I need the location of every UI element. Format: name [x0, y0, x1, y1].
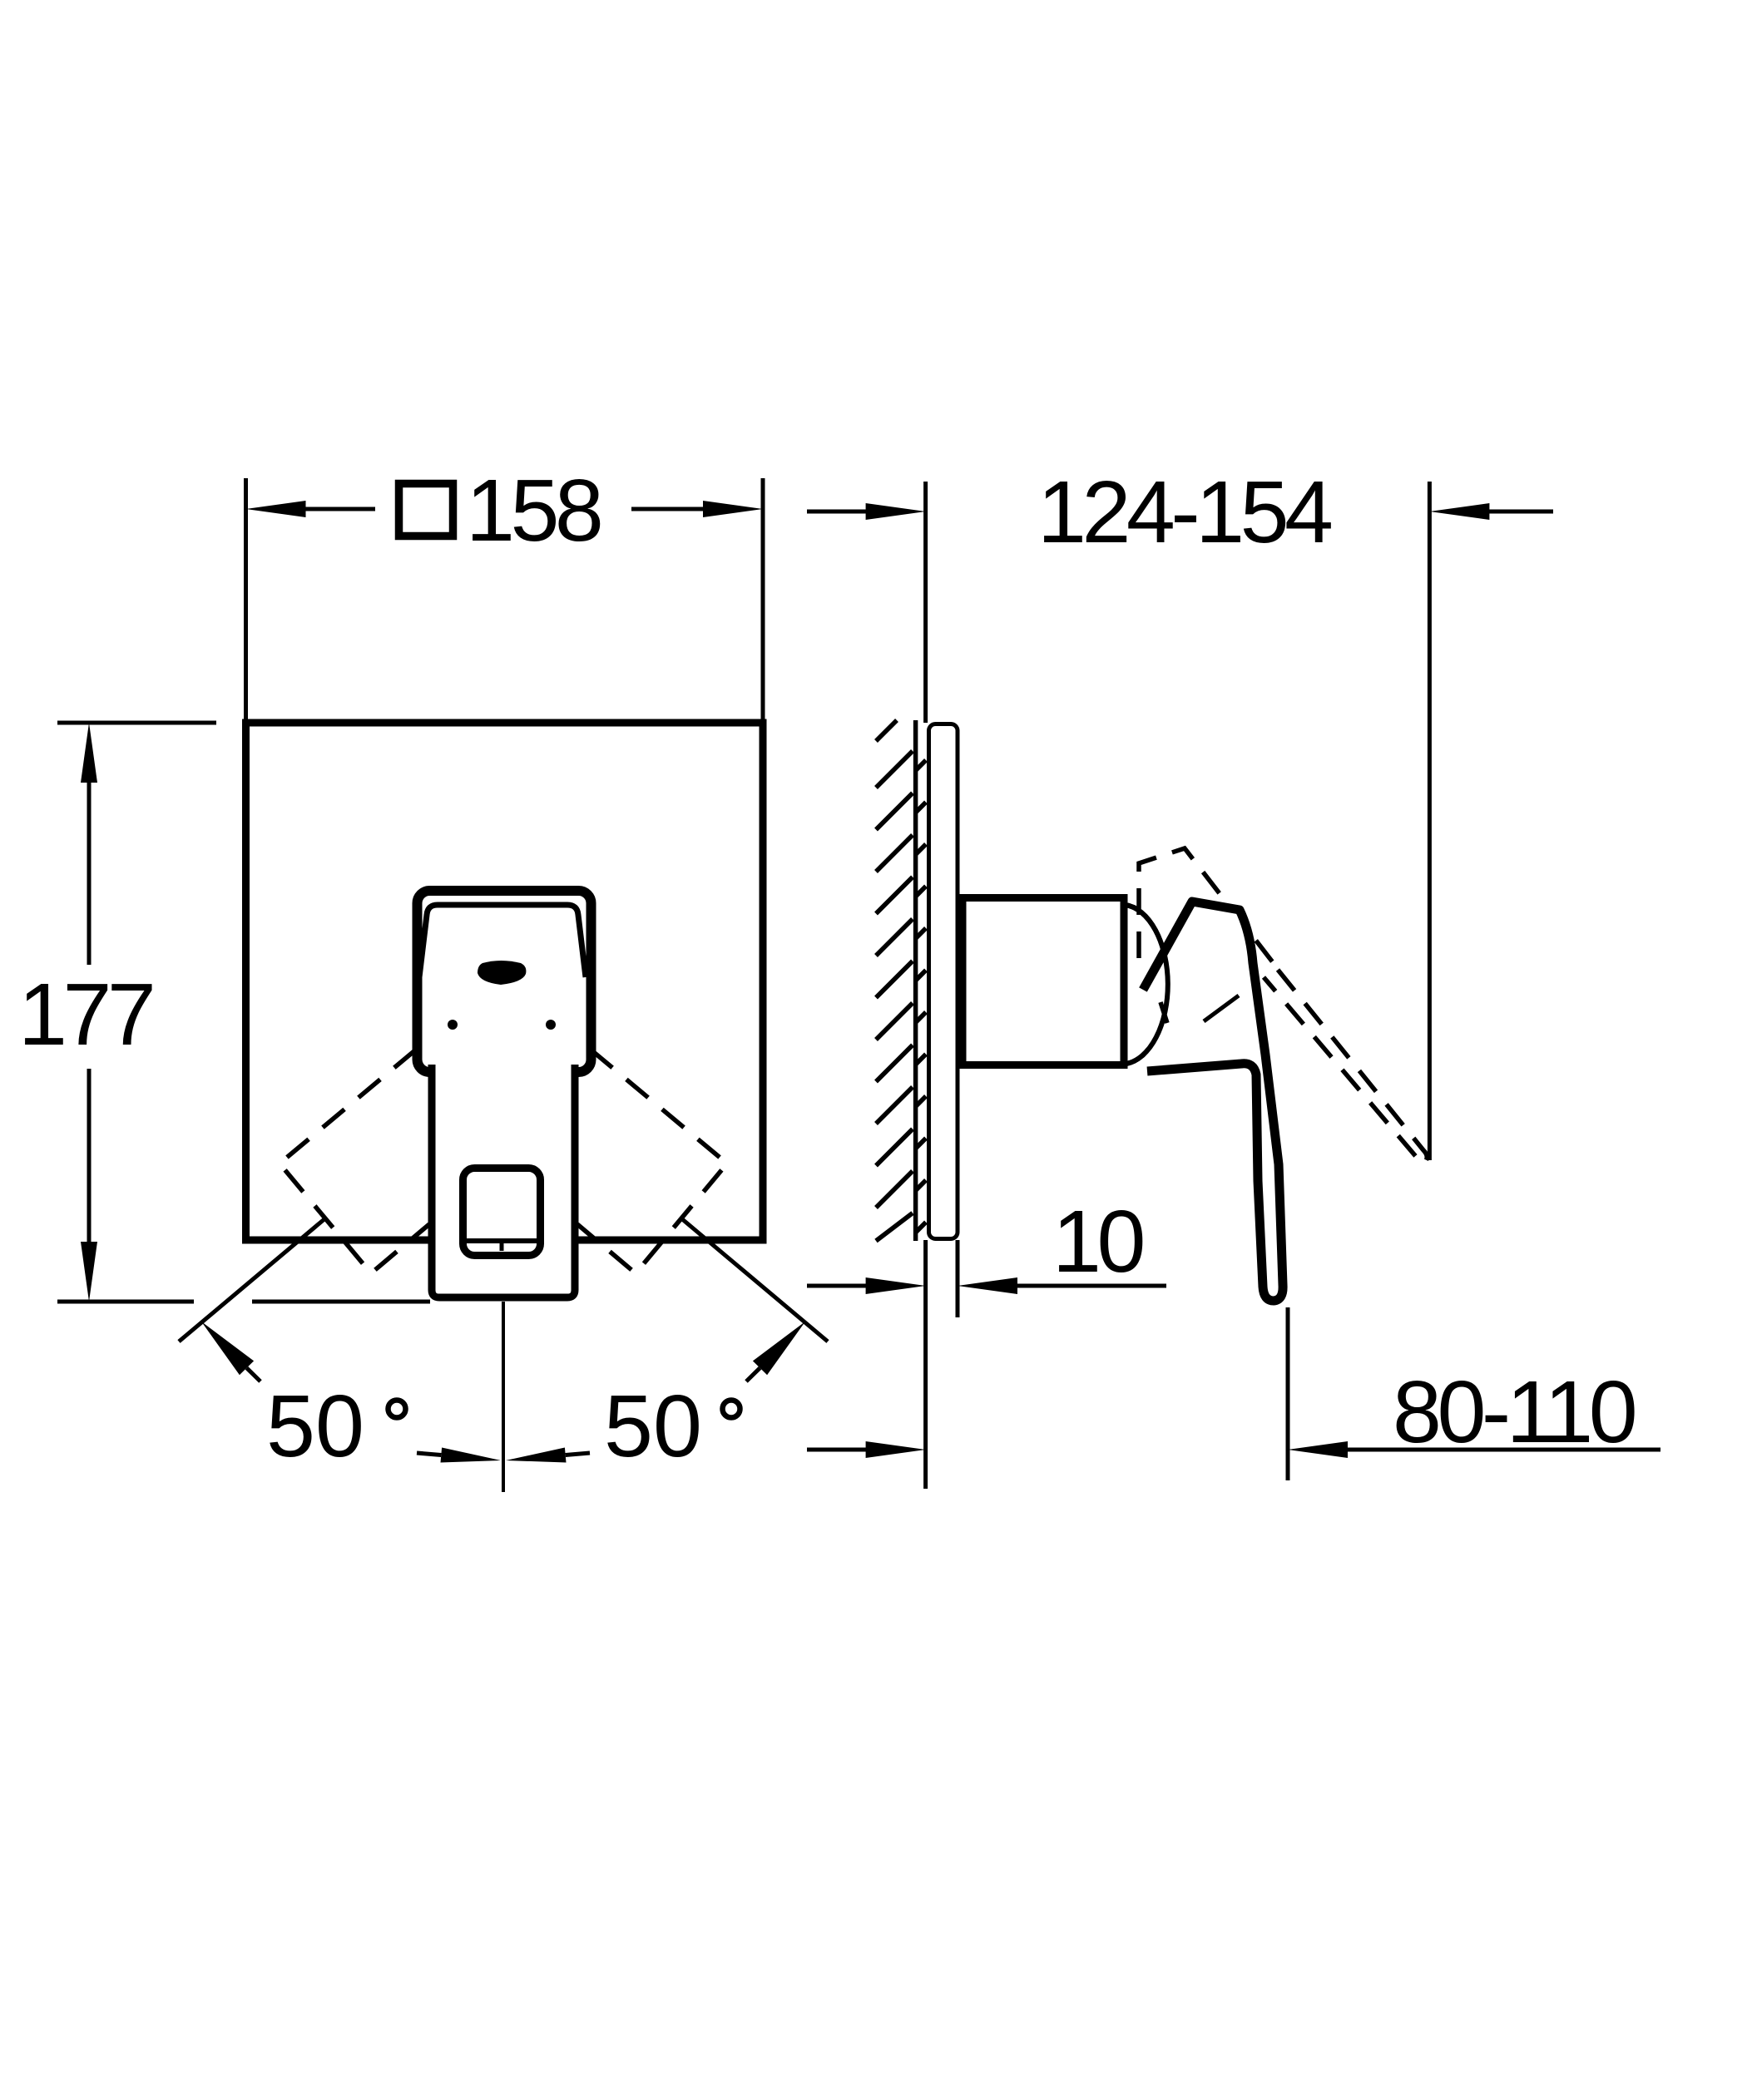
svg-text:50: 50: [604, 1377, 702, 1475]
svg-text:10: 10: [1052, 1193, 1142, 1291]
svg-text:177: 177: [18, 966, 152, 1064]
svg-text:50: 50: [266, 1377, 364, 1475]
svg-text:80-110: 80-110: [1393, 1363, 1635, 1461]
svg-text:158: 158: [466, 462, 601, 560]
svg-text:124-154: 124-154: [1037, 463, 1331, 561]
